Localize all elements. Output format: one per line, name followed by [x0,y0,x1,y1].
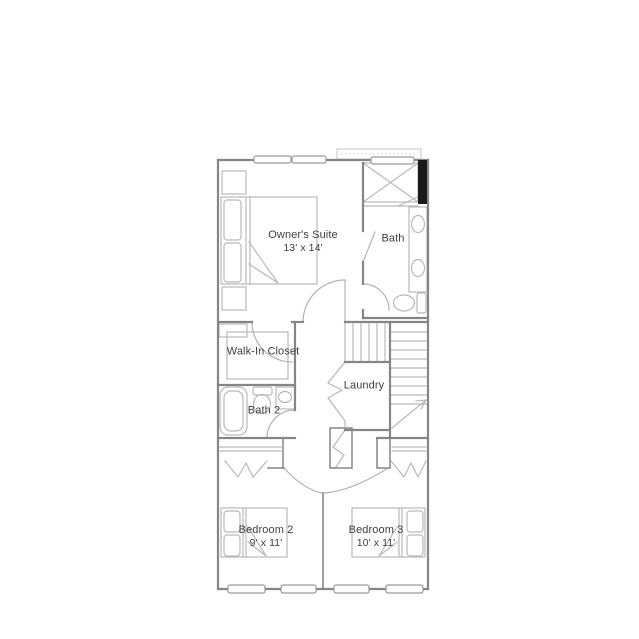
double-vanity-icon [409,207,427,292]
window-icon [281,585,316,593]
room-label-walk-in-closet: Walk-In Closet [227,345,300,358]
closet-shelf-bedroom-3 [392,447,426,451]
nightstand-icon [222,171,246,194]
window-icon [228,585,265,593]
bathtub-icon [220,387,247,435]
shower-icon [363,163,418,206]
room-dimensions: 10' x 11' [349,537,404,550]
window-icon [334,585,369,593]
room-name: Owner's Suite [268,229,337,242]
room-label-bath-2: Bath 2 [248,404,280,417]
room-label-owners-suite: Owner's Suite 13' x 14' [268,229,337,255]
room-dimensions: 13' x 14' [268,242,337,255]
bifold-door-bedroom-3-closet [391,461,426,477]
closet-shelf-bedroom-2 [220,447,281,451]
room-name: Laundry [344,379,384,392]
room-name: Bedroom 2 [239,524,294,537]
accent-wall [418,160,427,204]
room-label-bath: Bath [381,232,404,245]
room-name: Walk-In Closet [227,345,300,358]
window-icon [292,156,326,163]
room-label-laundry: Laundry [344,379,384,392]
room-name: Bath 2 [248,404,280,417]
floor-plan-drawing [0,0,639,639]
nightstand-icon [222,287,246,310]
room-name: Bath [381,232,404,245]
room-name: Bedroom 3 [349,524,404,537]
bifold-door-bedroom-2-closet [225,461,267,477]
room-label-bedroom-2: Bedroom 2 9' x 11' [239,524,294,550]
window-icon [371,157,414,164]
toilet-icon [394,293,427,313]
floor-plan: Owner's Suite 13' x 14' Bath Walk-In Clo… [0,0,639,639]
window-icon [254,156,291,163]
room-dimensions: 9' x 11' [239,537,294,550]
window-icon [386,585,423,593]
room-label-bedroom-3: Bedroom 3 10' x 11' [349,524,404,550]
